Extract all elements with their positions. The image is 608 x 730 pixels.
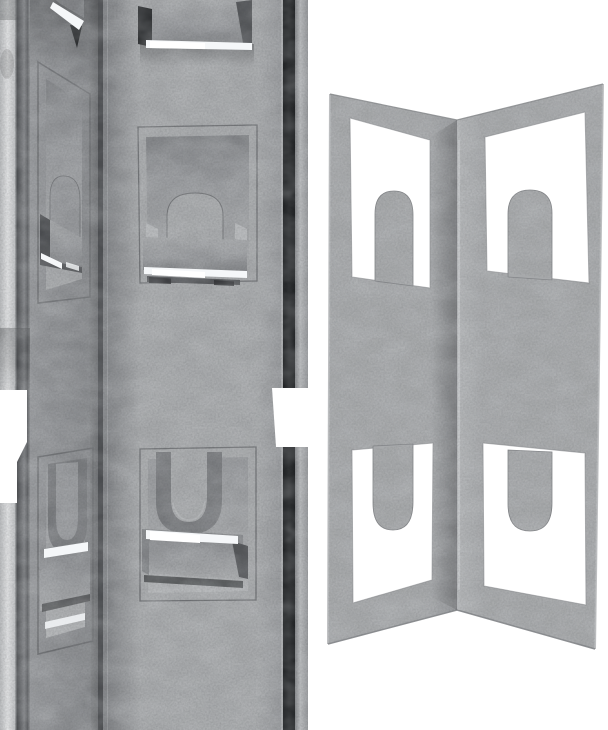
- product-photo: [0, 0, 608, 730]
- left-texture: [0, 0, 308, 730]
- texture-grain: [315, 60, 608, 660]
- left-closeup-view: [0, 0, 308, 730]
- product-render-svg: [0, 0, 608, 730]
- texture-grain: [0, 0, 308, 730]
- right-full-view: [315, 60, 608, 660]
- right-texture: [315, 60, 608, 660]
- slot-cutout-right: [272, 388, 308, 447]
